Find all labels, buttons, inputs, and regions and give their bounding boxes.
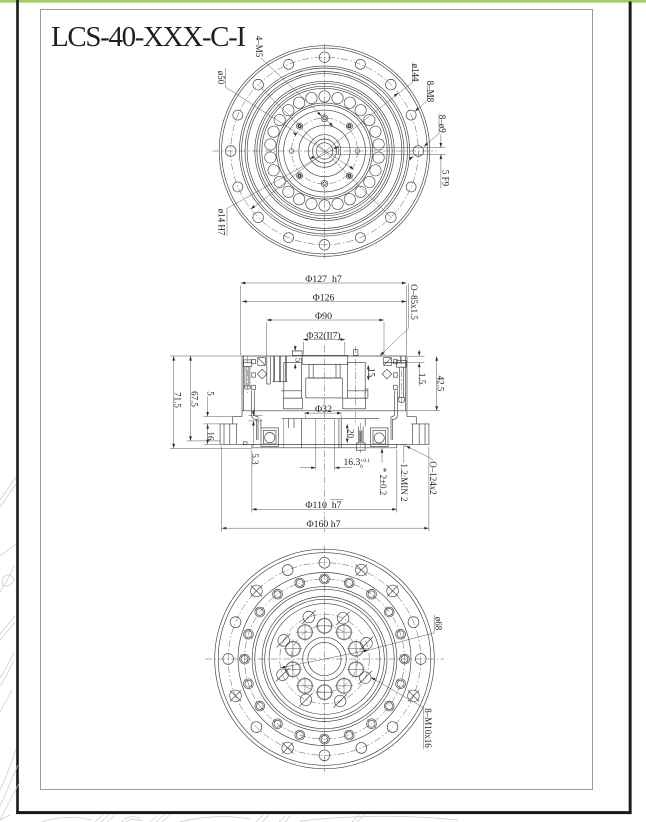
svg-text:O–85x1.5: O–85x1.5 xyxy=(409,284,419,320)
svg-text:1.5: 1.5 xyxy=(417,373,427,385)
svg-text:Φ126: Φ126 xyxy=(313,292,335,303)
svg-text:20: 20 xyxy=(346,429,356,439)
svg-text:5.3: 5.3 xyxy=(250,453,260,465)
svg-text:Φ32(Il7): Φ32(Il7) xyxy=(306,330,340,341)
svg-text:1.2:MIN 2: 1.2:MIN 2 xyxy=(399,464,409,502)
svg-text:ø68: ø68 xyxy=(433,617,443,631)
svg-text:Φ127 h7: Φ127 h7 xyxy=(305,274,342,285)
svg-text:16.3+0.10: 16.3+0.10 xyxy=(344,457,371,470)
svg-text:16: 16 xyxy=(206,432,216,442)
svg-text:ø14 H7: ø14 H7 xyxy=(216,209,226,236)
svg-text:ø50: ø50 xyxy=(216,71,226,85)
svg-text:5 F9: 5 F9 xyxy=(440,170,450,187)
svg-text:8–M10x16: 8–M10x16 xyxy=(423,708,433,748)
svg-text:O–124x2: O–124x2 xyxy=(428,461,438,495)
svg-text:15: 15 xyxy=(366,368,376,378)
svg-text:71.5: 71.5 xyxy=(173,392,183,408)
svg-text:LCS-40-XXX-C-I: LCS-40-XXX-C-I xyxy=(51,21,245,53)
svg-text:* 2±0.2: * 2±0.2 xyxy=(378,468,388,495)
svg-text:67.5: 67.5 xyxy=(190,391,200,407)
svg-text:Φ90: Φ90 xyxy=(315,311,332,322)
svg-text:4–M5: 4–M5 xyxy=(254,36,264,58)
svg-text:Φ160 h7: Φ160 h7 xyxy=(306,519,340,530)
svg-text:Φ110 h7: Φ110 h7 xyxy=(305,500,341,511)
svg-text:42.5: 42.5 xyxy=(435,376,445,392)
svg-text:Φ32: Φ32 xyxy=(315,404,332,415)
svg-text:5: 5 xyxy=(206,391,216,396)
